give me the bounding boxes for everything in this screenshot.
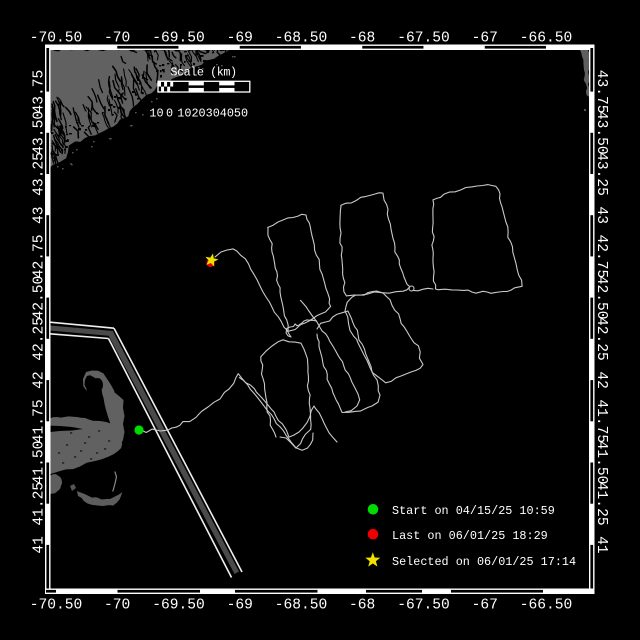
svg-text:43: 43: [593, 206, 609, 224]
svg-text:43.25: 43.25: [593, 152, 609, 196]
svg-text:43.50: 43.50: [32, 111, 48, 155]
svg-text:42.75: 42.75: [593, 235, 609, 279]
svg-text:42.75: 42.75: [32, 235, 48, 279]
svg-text:-67.50: -67.50: [397, 31, 450, 47]
svg-text:41.25: 41.25: [32, 482, 48, 526]
svg-text:0: 0: [166, 107, 173, 121]
svg-text:Selected on 06/01/25 17:14: Selected on 06/01/25 17:14: [392, 555, 576, 569]
svg-text:-69.50: -69.50: [152, 598, 205, 614]
svg-text:-68: -68: [349, 31, 375, 47]
svg-text:-69: -69: [227, 598, 253, 614]
svg-text:43: 43: [32, 206, 48, 224]
svg-text:43.50: 43.50: [593, 111, 609, 155]
svg-text:42: 42: [593, 371, 609, 389]
svg-text:-68: -68: [349, 598, 375, 614]
svg-text:-70.50: -70.50: [30, 598, 83, 614]
svg-text:Last on 06/01/25 18:29: Last on 06/01/25 18:29: [392, 529, 548, 543]
svg-text:1020304050: 1020304050: [177, 107, 248, 121]
svg-text:-70.50: -70.50: [30, 31, 83, 47]
svg-text:-68.50: -68.50: [275, 598, 328, 614]
svg-text:-69.50: -69.50: [152, 31, 205, 47]
svg-text:41.25: 41.25: [593, 482, 609, 526]
svg-text:-66.50: -66.50: [520, 598, 573, 614]
svg-text:41: 41: [593, 536, 609, 554]
svg-text:-68.50: -68.50: [275, 31, 328, 47]
svg-text:Start on 04/15/25 10:59: Start on 04/15/25 10:59: [392, 504, 555, 518]
svg-text:41.50: 41.50: [32, 441, 48, 485]
svg-text:-70: -70: [104, 598, 130, 614]
svg-text:43.75: 43.75: [32, 70, 48, 114]
svg-text:42.25: 42.25: [593, 317, 609, 361]
svg-text:-70: -70: [104, 31, 130, 47]
svg-text:-67: -67: [472, 598, 498, 614]
svg-text:10: 10: [149, 107, 163, 121]
svg-text:43.75: 43.75: [593, 70, 609, 114]
svg-text:Scale (km): Scale (km): [170, 66, 236, 80]
svg-text:42.50: 42.50: [593, 276, 609, 320]
svg-text:41.75: 41.75: [593, 399, 609, 443]
svg-text:-66.50: -66.50: [520, 31, 573, 47]
svg-text:-67: -67: [472, 31, 498, 47]
svg-text:43.25: 43.25: [32, 152, 48, 196]
svg-text:42.25: 42.25: [32, 317, 48, 361]
svg-text:42: 42: [32, 371, 48, 389]
svg-text:41: 41: [32, 536, 48, 554]
svg-text:42.50: 42.50: [32, 276, 48, 320]
svg-text:-69: -69: [227, 31, 253, 47]
svg-text:41.75: 41.75: [32, 399, 48, 443]
svg-text:-67.50: -67.50: [397, 598, 450, 614]
svg-text:41.50: 41.50: [593, 441, 609, 485]
